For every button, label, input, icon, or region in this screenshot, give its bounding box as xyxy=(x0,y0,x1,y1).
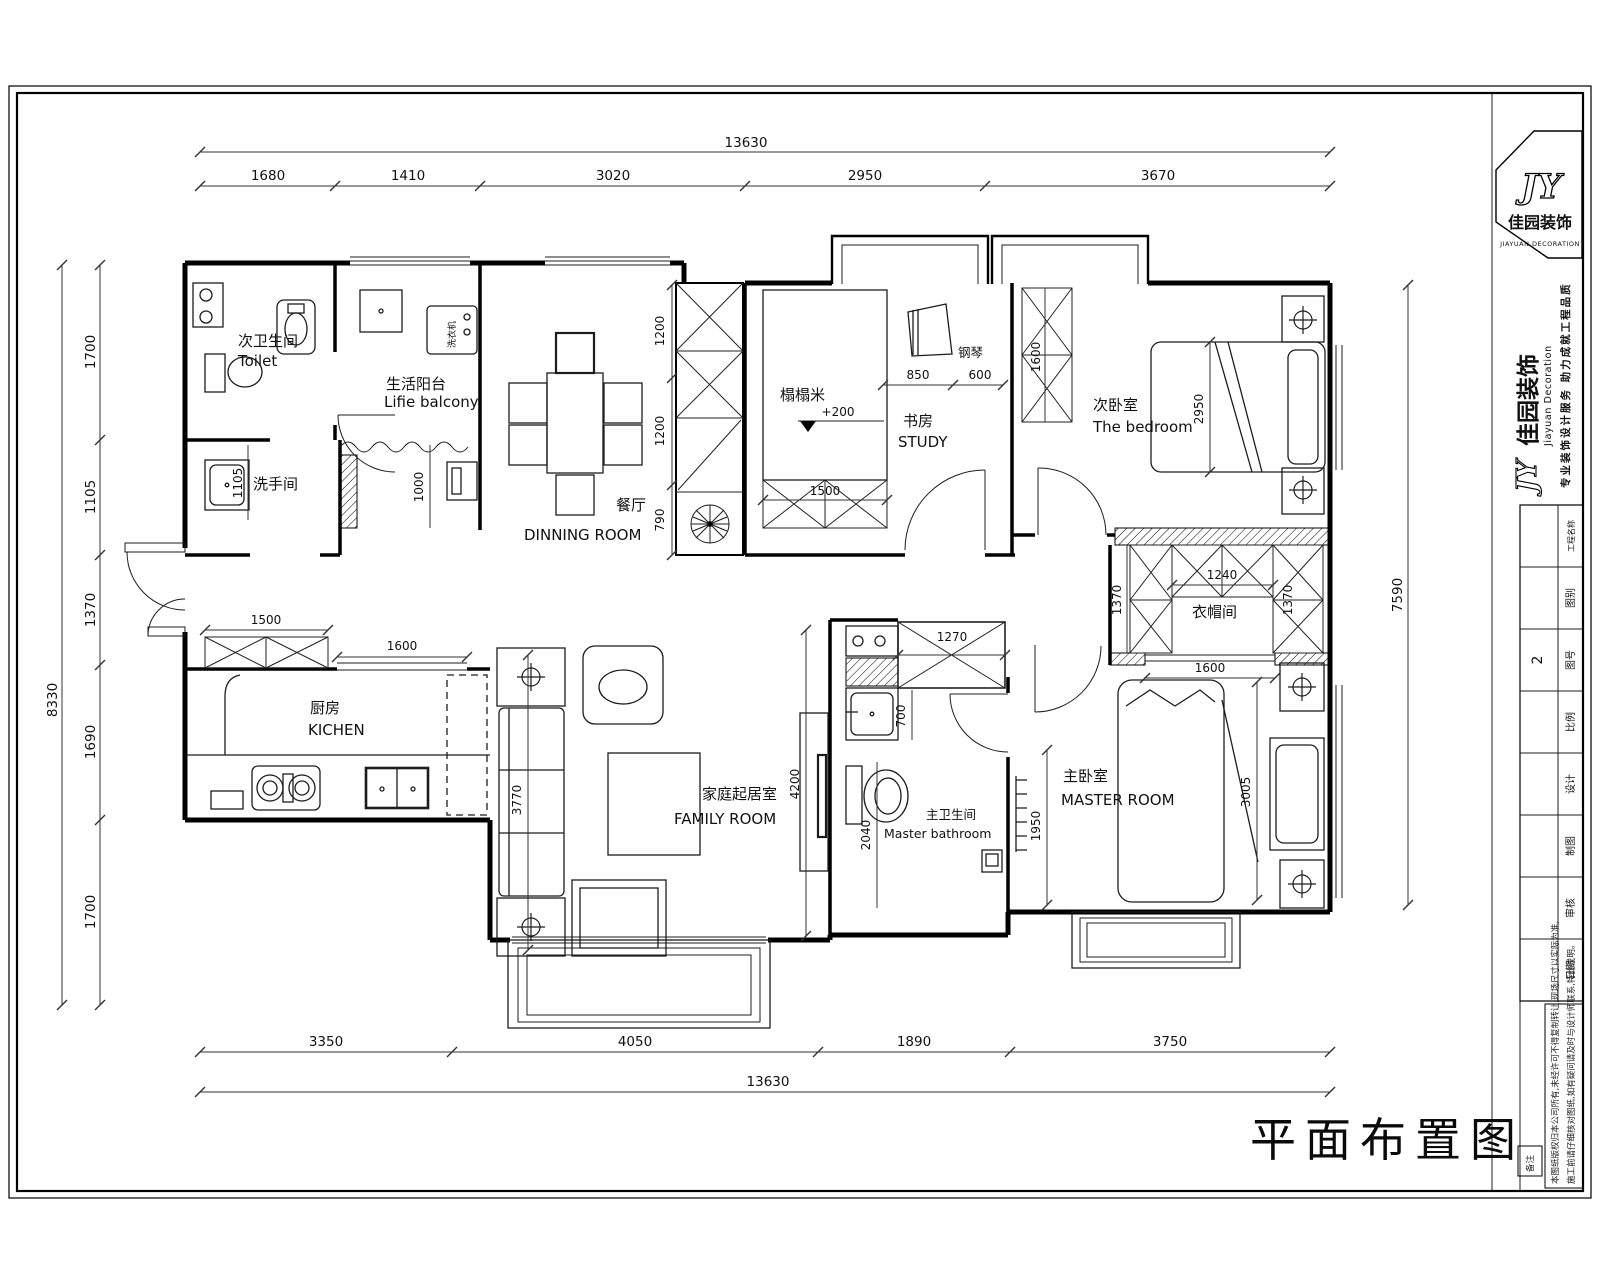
kitchen-fixtures xyxy=(187,675,490,815)
label-mbath-cn: 主卫生间 xyxy=(926,807,976,822)
ornament-spiral xyxy=(691,505,729,543)
dim-top-1: 1680 xyxy=(251,168,285,184)
outer-walls xyxy=(185,263,1330,940)
label-closet-cn: 衣帽间 xyxy=(1192,603,1237,621)
hatch-wall-bath xyxy=(846,658,898,686)
tb-row-label-6: 审核 xyxy=(1564,898,1577,918)
label-master-cn: 主卧室 xyxy=(1063,767,1108,785)
dim-tv-wall: 4200 xyxy=(788,769,802,800)
label-mbath-en: Master bathroom xyxy=(884,826,991,841)
dim-left-3: 1370 xyxy=(83,593,99,627)
dim-bot-total: 13630 xyxy=(747,1074,790,1090)
label-dining-cn: 餐厅 xyxy=(616,496,646,514)
master-door xyxy=(1035,645,1101,712)
hatch-wall-bedroom xyxy=(1115,528,1330,545)
dim-top-5: 3670 xyxy=(1141,168,1175,184)
label-toilet-en: Toilet xyxy=(237,352,277,370)
dim-study-a: 850 xyxy=(907,368,930,382)
notes-line1: 本图纸版权归本公司所有,未经许可不得复制转让,现场尺寸以实际为准, xyxy=(1550,921,1561,1184)
entry-shoe-cabinet xyxy=(205,637,328,668)
dim-study-cab: 1500 xyxy=(810,484,841,498)
family-furniture xyxy=(497,646,828,956)
bay-window-study xyxy=(832,236,988,284)
logo-monogram: JY xyxy=(1515,167,1564,207)
bay-window-bedroom xyxy=(992,236,1148,284)
dim-closet-top: 1240 xyxy=(1207,568,1238,582)
piano xyxy=(908,304,952,356)
dim-left-total: 8330 xyxy=(45,683,61,717)
dim-left-4: 1690 xyxy=(83,725,99,759)
label-study-en: STUDY xyxy=(898,433,948,451)
dim-stair2: 1200 xyxy=(653,416,667,447)
dim-right-total: 7590 xyxy=(1390,578,1406,612)
company-logo: JY 佳园装饰 JIAYUAN DECORATION xyxy=(1496,131,1582,258)
kitchen-sliding-door xyxy=(337,663,467,670)
label-dining-en: DINNING ROOM xyxy=(524,526,641,544)
tv-cabinet xyxy=(800,713,828,871)
tb-row-label-0: 工程名称 xyxy=(1566,520,1576,552)
dining-set xyxy=(509,333,642,515)
study-door xyxy=(905,470,985,550)
dim-bed2-window: 2950 xyxy=(1192,394,1206,425)
dim-right: 7590 xyxy=(1390,280,1413,910)
label-family-cn: 家庭起居室 xyxy=(702,785,777,803)
bath-sink xyxy=(846,688,898,740)
label-balcony-cn: 生活阳台 xyxy=(386,375,446,393)
bed2 xyxy=(1151,342,1325,472)
dim-left: 1700 1105 1370 1690 1700 8330 xyxy=(45,260,105,1010)
hatch-wall-closet-l xyxy=(1110,653,1145,665)
dim-left-5: 1700 xyxy=(83,895,99,929)
label-toilet-cn: 次卫生间 xyxy=(238,332,298,350)
room-labels: 次卫生间 Toilet 生活阳台 Lifie balcony 洗衣机 洗手间 餐… xyxy=(237,321,1237,841)
dim-master-window: 3005 xyxy=(1239,777,1253,808)
dim-master-left: 1950 xyxy=(1029,811,1043,842)
dim-sofa: 3770 xyxy=(510,785,524,816)
dim-bot-3: 1890 xyxy=(897,1034,931,1050)
dim-kitchen-door: 1600 xyxy=(387,639,418,653)
dim-closet-door: 1600 xyxy=(1195,661,1226,675)
tb-row-label-3: 比例 xyxy=(1564,712,1577,732)
hatch-wall-balcony xyxy=(340,455,357,528)
dim-bath-sink: 700 xyxy=(894,705,908,728)
dim-bot-2: 4050 xyxy=(618,1034,652,1050)
interior-dims: 1200 1200 790 1105 1000 850 600 1500 160… xyxy=(200,280,1295,955)
logo-name-cn: 佳园装饰 xyxy=(1508,213,1572,232)
dim-left-1: 1700 xyxy=(83,335,99,369)
label-study-cn: 书房 xyxy=(903,412,933,430)
dim-bath-cab: 1270 xyxy=(937,630,968,644)
title-block: JY 佳园装饰 JIAYUAN DECORATION JY 佳园装饰 Jiayu… xyxy=(1496,131,1583,1188)
master-furniture xyxy=(1118,663,1324,908)
label-tatami: 榻榻米 xyxy=(780,386,825,404)
brand-name-en: Jiayuan Decoration xyxy=(1543,345,1554,447)
interior-walls xyxy=(185,263,1330,935)
entry-door xyxy=(125,543,185,636)
tb-row-label-5: 制图 xyxy=(1564,836,1577,856)
brand-side: JY 佳园装饰 Jiayuan Decoration 专业装饰设计服务 助力成就… xyxy=(1512,282,1572,497)
label-balcony-en: Lifie balcony xyxy=(384,393,479,411)
brand-name-cn: 佳园装饰 xyxy=(1515,354,1542,446)
dim-bottom: 3350 4050 1890 3750 13630 xyxy=(195,1034,1335,1097)
drawing-title: 平面布置图 xyxy=(1250,1113,1525,1167)
dim-bot-4: 3750 xyxy=(1153,1034,1187,1050)
dim-balcony: 1000 xyxy=(412,472,426,503)
label-washroom-cn: 洗手间 xyxy=(253,475,298,493)
dim-stair3: 790 xyxy=(653,509,667,532)
dim-entry-cab: 1500 xyxy=(251,613,282,627)
tb-row-label-2: 图号 xyxy=(1565,650,1577,670)
bedroom2-furniture xyxy=(1151,296,1325,514)
tb-row-value-2: 2 xyxy=(1530,656,1546,665)
label-washer: 洗衣机 xyxy=(446,321,458,348)
dim-bath-wc: 2040 xyxy=(859,820,873,851)
dim-closet-left: 1370 xyxy=(1110,585,1124,616)
blueprint-canvas: 13630 1680 1410 3020 2950 3670 3350 4050… xyxy=(0,0,1600,1280)
towel-radiator xyxy=(1016,776,1027,852)
label-piano: 钢琴 xyxy=(958,345,984,360)
balcony-curtain-line xyxy=(340,442,468,452)
label-family-en: FAMILY ROOM xyxy=(674,810,776,828)
dim-top-2: 1410 xyxy=(391,168,425,184)
coffee-table xyxy=(608,753,700,855)
dim-left-2: 1105 xyxy=(83,480,99,514)
stove xyxy=(252,766,320,810)
dim-top: 13630 1680 1410 3020 2950 3670 xyxy=(195,135,1335,191)
dim-stair1: 1200 xyxy=(653,316,667,347)
label-master-en: MASTER ROOM xyxy=(1061,791,1175,809)
note-box-label: 备注 xyxy=(1525,1154,1536,1172)
dim-wardrobe: 1600 xyxy=(1029,342,1043,373)
dim-wash: 1105 xyxy=(231,468,245,499)
bath-door xyxy=(950,694,1008,752)
entry-porch xyxy=(508,940,770,1028)
dim-study-b: 600 xyxy=(969,368,992,382)
bedroom2-door xyxy=(1038,468,1106,535)
drawing-sheet: 13630 1680 1410 3020 2950 3670 3350 4050… xyxy=(0,0,1600,1280)
furniture xyxy=(187,283,1325,956)
brand-slogan: 专业装饰设计服务 助力成就工程品质 xyxy=(1559,282,1572,488)
notes-line2: 施工前请仔细核对图纸,如有疑问请及时与设计师联系,特此说明。 xyxy=(1566,941,1577,1184)
dim-top-total: 13630 xyxy=(725,135,768,151)
bay-window-master xyxy=(1072,912,1240,968)
dim-top-3: 3020 xyxy=(596,168,630,184)
dim-bot-1: 3350 xyxy=(309,1034,343,1050)
level-mark xyxy=(798,421,884,432)
label-kitchen-en: KICHEN xyxy=(308,721,365,739)
tb-row-label-1: 图别 xyxy=(1565,588,1577,608)
label-bedroom2-cn: 次卧室 xyxy=(1093,396,1138,414)
titleblock-notes: 本图纸版权归本公司所有,未经许可不得复制转让,现场尺寸以实际为准, 施工前请仔细… xyxy=(1518,921,1583,1188)
brand-monogram: JY xyxy=(1512,457,1543,497)
label-bedroom2-en: The bedroom xyxy=(1092,418,1193,436)
dim-closet-right: 1370 xyxy=(1281,585,1295,616)
tv xyxy=(818,755,826,837)
logo-name-en: JIAYUAN DECORATION xyxy=(1499,240,1580,248)
sheet-frame xyxy=(9,86,1591,1198)
tb-row-label-4: 设计 xyxy=(1564,774,1577,794)
shaft-boxes xyxy=(676,283,743,492)
label-kitchen-cn: 厨房 xyxy=(310,699,340,717)
armchair xyxy=(583,646,663,724)
dim-tatami-level: +200 xyxy=(822,405,855,419)
tatami-platform xyxy=(763,290,887,480)
dim-top-4: 2950 xyxy=(848,168,882,184)
